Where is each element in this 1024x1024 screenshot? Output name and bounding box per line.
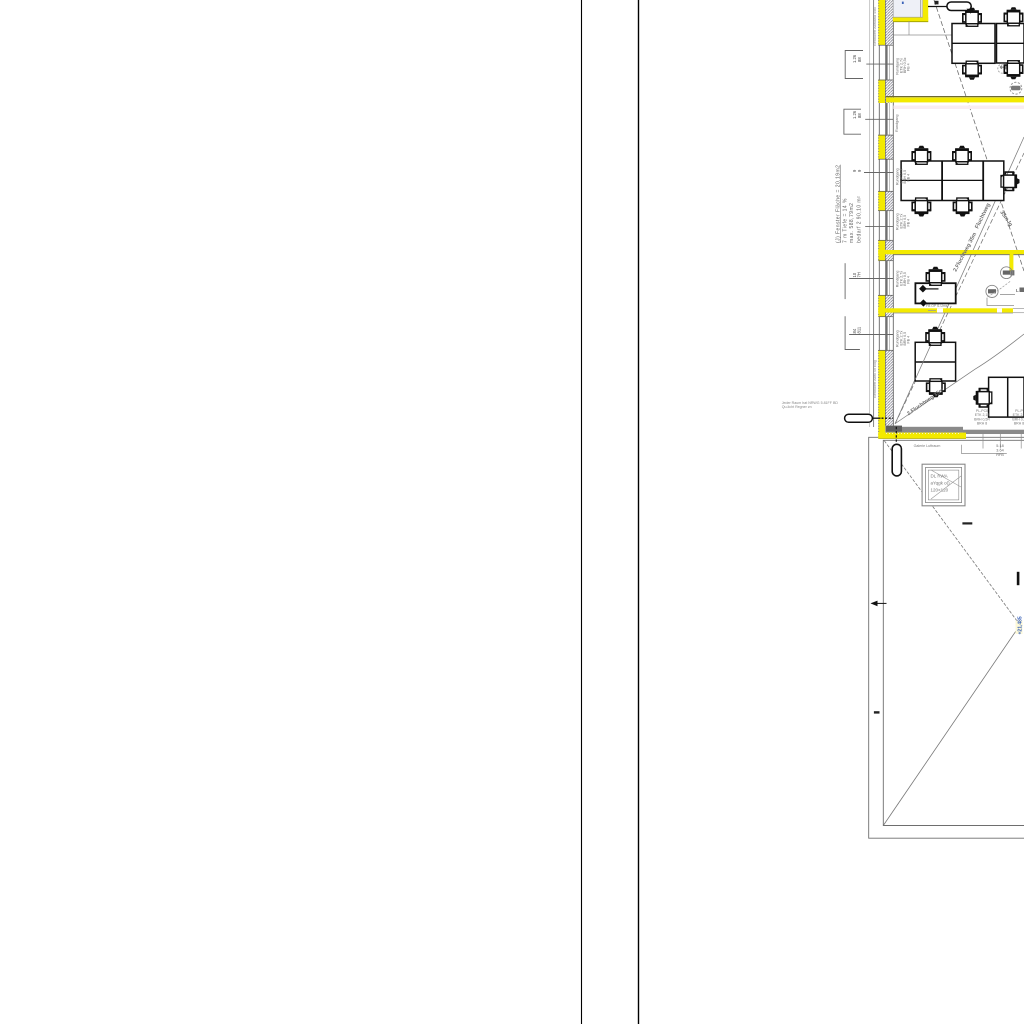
svg-text:BRH 8: BRH 8 [977,422,987,426]
svg-text:Nennwert Abst 49 Ebg: Nennwert Abst 49 Ebg [873,360,877,398]
svg-text:FB 4: FB 4 [906,276,910,284]
svg-text:RFB: RFB [996,453,1004,457]
svg-text:7H: 7H [857,272,862,277]
svg-text:811: 811 [857,326,862,333]
svg-text:Qu-licht Regner zn: Qu-licht Regner zn [782,405,812,409]
svg-text:3.64: 3.64 [996,448,1003,452]
svg-text:+21,485: +21,485 [1018,616,1024,634]
svg-text:120×120: 120×120 [931,488,949,493]
svg-text:(J) Fenster Fläche = 20,19m2: (J) Fenster Fläche = 20,19m2 [836,165,842,243]
svg-text:Galerie Luftraum: Galerie Luftraum [914,444,941,448]
svg-text:BRH 8: BRH 8 [1014,422,1024,426]
svg-text:88: 88 [857,57,862,62]
svg-text:7 m Tiefe = 14 %: 7 m Tiefe = 14 % [843,198,849,243]
svg-text:Nennwert Abstand 49kl: Nennwert Abstand 49kl [873,7,877,46]
svg-text:max. 588,79m2: max. 588,79m2 [849,203,855,243]
svg-text:FB OP S-Ums: FB OP S-Ums [926,304,948,308]
svg-text:88: 88 [857,113,862,118]
svg-text:FB 4: FB 4 [906,174,910,182]
svg-text:aYqgk o(): aYqgk o() [931,481,951,486]
svg-text:Rundgang: Rundgang [895,114,899,132]
svg-text:5.18: 5.18 [996,444,1003,448]
svg-text:L: L [1016,288,1019,293]
svg-text:FB 4: FB 4 [906,336,910,344]
svg-text:FB 4: FB 4 [906,63,910,71]
svg-text:FB 4: FB 4 [906,219,910,227]
svg-text:bedarf 2 90,10 m²: bedarf 2 90,10 m² [857,196,863,243]
